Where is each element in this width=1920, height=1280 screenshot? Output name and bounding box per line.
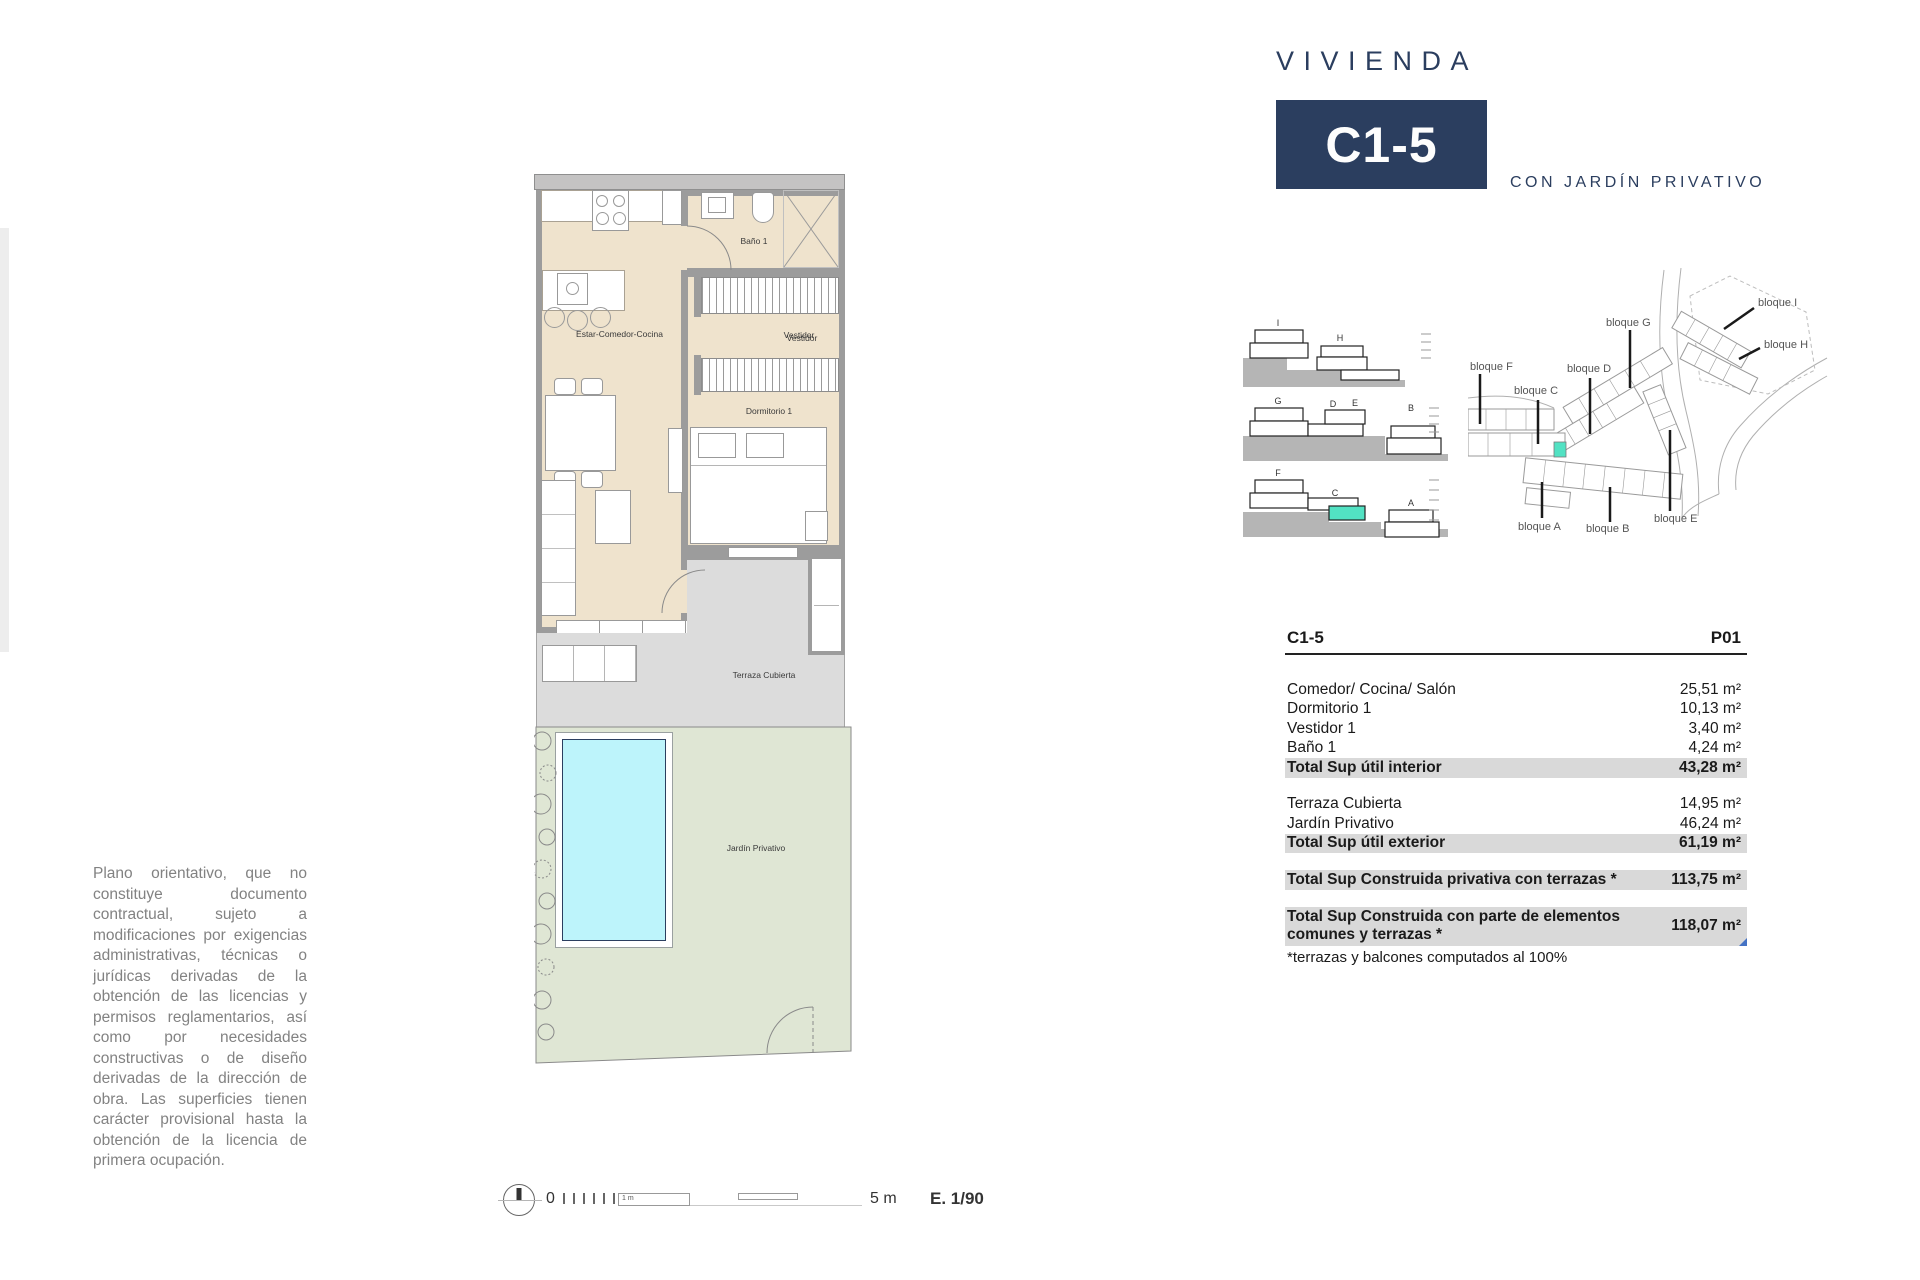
living-window [556, 620, 688, 634]
table-total-row: Total Sup útil interior 43,28 m² [1285, 758, 1747, 778]
unit-subtitle: CON JARDÍN PRIVATIVO [1510, 174, 1765, 192]
scale-segment [738, 1193, 798, 1200]
pillow [698, 433, 736, 458]
section-diagrams: I H G D E B F C A [1243, 308, 1448, 543]
wardrobe-end-wall [694, 274, 701, 317]
dining-table [545, 395, 616, 471]
scale-end-label: 5 m [870, 1190, 897, 1208]
scale-first-meter: 1 m [618, 1193, 690, 1206]
hob-burner-icon [613, 212, 626, 225]
plan-sheet: { "header": { "title": "VIVIENDA", "unit… [0, 0, 1920, 1280]
outdoor-sofa [542, 645, 637, 682]
wardrobe-end-wall [694, 355, 701, 395]
chair [581, 378, 603, 395]
scale-tick [583, 1193, 585, 1204]
section-letter: E [1352, 398, 1358, 408]
storage-shelf-line [814, 605, 839, 606]
site-label: bloque C [1514, 385, 1558, 397]
site-label: bloque A [1518, 521, 1561, 533]
room-label-terrace: Terraza Cubierta [694, 670, 834, 680]
site-label: bloque I [1758, 297, 1797, 309]
site-label: bloque E [1654, 513, 1697, 525]
hob-burner-icon [596, 212, 609, 225]
site-label: bloque H [1764, 339, 1808, 351]
toilet [752, 192, 774, 223]
scale-tick [593, 1193, 595, 1204]
chair [554, 378, 576, 395]
terrace-storage [808, 555, 845, 655]
stool [590, 307, 611, 328]
table-unit-code: C1-5 [1287, 628, 1324, 648]
area-table: C1-5 P01 Comedor/ Cocina/ Salón 25,51 m²… [1285, 628, 1747, 966]
table-footnote: *terrazas y balcones computados al 100% [1285, 949, 1747, 966]
section-letter: A [1408, 498, 1414, 508]
coffee-table [595, 490, 631, 544]
table-total-row: Total Sup Construida con parte de elemen… [1285, 907, 1747, 946]
room-label-dressing-ghost: Vestidor [762, 333, 842, 343]
table-row: Jardín Privativo 46,24 m² [1285, 814, 1747, 834]
pool-water [562, 739, 666, 941]
site-label: bloque D [1567, 363, 1611, 375]
disclaimer-text: Plano orientativo, que no constituye doc… [93, 864, 307, 1172]
hob-burner-icon [596, 195, 608, 207]
section-letter: B [1408, 403, 1414, 413]
room-label-bath: Baño 1 [722, 236, 786, 246]
wardrobe [701, 358, 839, 392]
table-row: Comedor/ Cocina/ Salón 25,51 m² [1285, 680, 1747, 700]
floor-plan: Estar-Comedor-Cocina Baño 1 Vestidor Ves… [534, 174, 857, 1068]
site-label: bloque F [1470, 361, 1513, 373]
north-arrow-icon [503, 1184, 535, 1216]
area-table-header: C1-5 P01 [1285, 628, 1747, 655]
scale-tick [603, 1193, 605, 1204]
stool [544, 307, 565, 328]
kitchen-tall-unit [662, 190, 682, 225]
nightstand [805, 511, 828, 541]
pillow [746, 433, 784, 458]
section-letter: F [1275, 468, 1281, 478]
room-label-bedroom: Dormitorio 1 [724, 406, 814, 416]
table-total-row: Total Sup útil exterior 61,19 m² [1285, 834, 1747, 854]
site-label: bloque B [1586, 523, 1629, 535]
scale-tick [613, 1193, 615, 1204]
room-label-garden: Jardín Privativo [691, 843, 821, 853]
comment-marker-icon [1739, 938, 1747, 946]
pool [555, 732, 673, 948]
stool [567, 310, 588, 331]
bath-door-opening [681, 226, 688, 270]
site-plan: bloque I bloque H bloque G bloque D bloq… [1468, 268, 1828, 568]
scale-bar: 1 m [618, 1192, 862, 1206]
unit-badge-label: C1-5 [1325, 116, 1437, 174]
upper-boundary-wall [534, 174, 845, 190]
highlighted-unit-marker [1554, 442, 1566, 457]
sofa [541, 480, 576, 616]
chair [581, 471, 603, 488]
sink-basin-icon [566, 282, 579, 295]
scale-tick [563, 1193, 565, 1204]
scale-zero-label: 0 [546, 1190, 555, 1208]
unit-badge: C1-5 [1276, 100, 1487, 189]
tv-bench [668, 428, 683, 493]
section-letter: D [1330, 399, 1337, 409]
site-label: bloque G [1606, 317, 1651, 329]
bedroom-window [728, 547, 798, 558]
section-letter: H [1337, 333, 1344, 343]
shower [783, 190, 839, 268]
table-row: Terraza Cubierta 14,95 m² [1285, 795, 1747, 815]
page-edge-shadow [0, 228, 9, 652]
bath-wall [687, 268, 845, 277]
private-garden: Jardín Privativo [536, 727, 851, 1063]
hob-burner-icon [613, 195, 625, 207]
table-total-row: Total Sup Construida privativa con terra… [1285, 870, 1747, 890]
section-letter: G [1274, 396, 1281, 406]
section-letter: I [1277, 318, 1280, 328]
table-row: Dormitorio 1 10,13 m² [1285, 700, 1747, 720]
scale-tick [573, 1193, 575, 1204]
table-row: Baño 1 4,24 m² [1285, 739, 1747, 759]
bath-sink-basin [708, 197, 726, 213]
section-letter-highlighted: C [1332, 488, 1339, 498]
table-floor-code: P01 [1711, 628, 1741, 648]
scale-ratio-label: E. 1/90 [930, 1189, 984, 1209]
page-title: VIVIENDA [1276, 46, 1516, 77]
room-label-living: Estar-Comedor-Cocina [552, 329, 687, 339]
table-row: Vestidor 1 3,40 m² [1285, 719, 1747, 739]
bed-fold-line [691, 465, 826, 466]
wardrobe [701, 277, 839, 314]
